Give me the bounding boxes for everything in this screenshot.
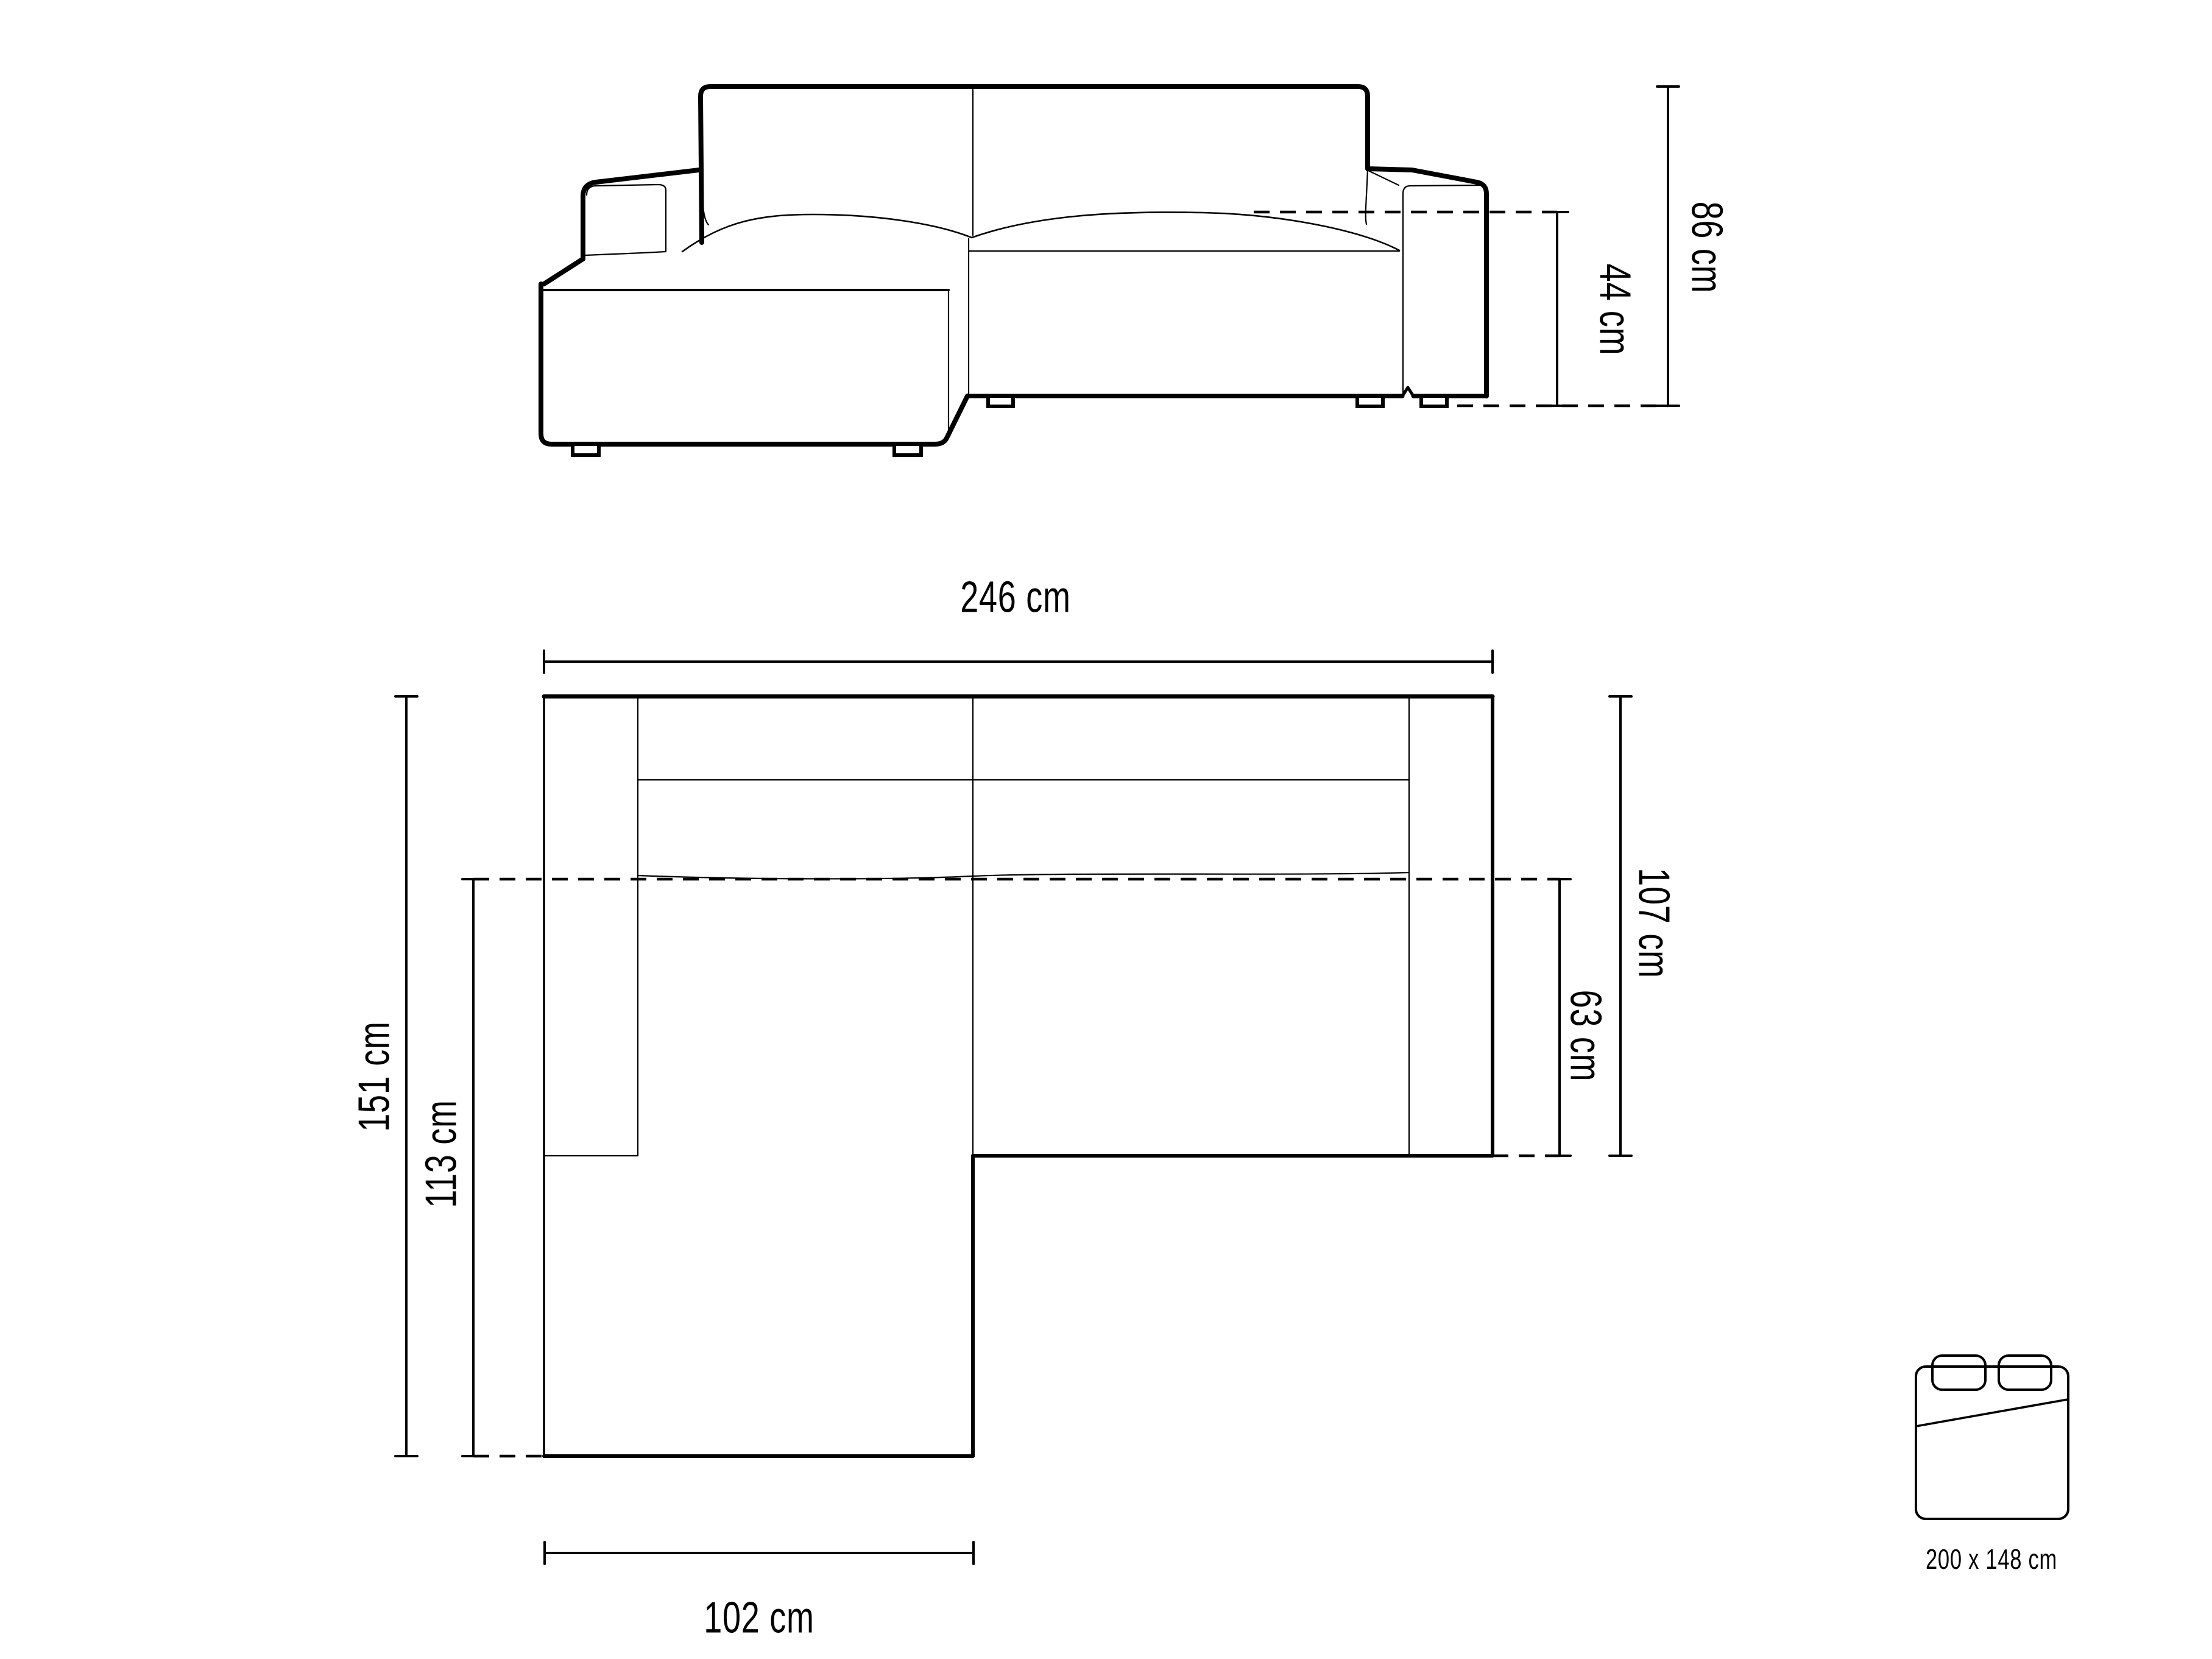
body-arm-notch — [1402, 387, 1413, 396]
total-height-label: 86 cm — [1683, 202, 1731, 294]
body-leg-right — [1357, 396, 1383, 406]
right-armrest-top-face-left-edge — [1368, 171, 1399, 185]
left-armrest-front-bottom-edge — [585, 252, 666, 255]
total-width-label: 246 cm — [960, 573, 1071, 621]
bed-duvet-fold-line — [1916, 1399, 2068, 1426]
chaise-leg-left — [573, 444, 599, 455]
chaise-width-label: 102 cm — [704, 1593, 814, 1642]
right-armrest-outer-edge — [1368, 169, 1486, 396]
seat-depth-label: 63 cm — [1561, 990, 1610, 1082]
bed-top-view-icon — [1916, 1356, 2068, 1519]
left-armrest-top-face — [587, 185, 666, 252]
armrest-leg-right — [1421, 396, 1447, 406]
sofa-dimensions-diagram: 86 cm 44 cm 246 cm 151 cm — [0, 0, 2212, 1659]
chaise-depth-label: 113 cm — [417, 1100, 465, 1208]
front-elevation-view: 86 cm 44 cm — [541, 87, 1731, 455]
seat-cushions-curve — [682, 212, 1399, 252]
bed-pillow-left — [1932, 1356, 1985, 1390]
right-armrest-top-face — [1403, 185, 1482, 194]
backrest-outline — [701, 87, 1368, 242]
height-dimensions: 86 cm 44 cm — [1254, 87, 1731, 406]
sleeping-area: 200 x 148 cm — [1916, 1356, 2068, 1575]
sleeping-area-size-label: 200 x 148 cm — [1926, 1543, 2057, 1575]
backrest-right-lower-edge — [1366, 169, 1368, 224]
body-leg-middle — [988, 396, 1013, 406]
plan-dimensions: 246 cm 151 cm 113 cm 107 cm 63 cm 102 cm — [350, 573, 1678, 1642]
side-depth-label: 107 cm — [1630, 868, 1678, 978]
diagram-canvas: 86 cm 44 cm 246 cm 151 cm — [0, 0, 2212, 1659]
top-plan-view: 246 cm 151 cm 113 cm 107 cm 63 cm 102 cm — [350, 573, 1678, 1642]
left-armrest-outer-edge — [544, 170, 699, 284]
total-depth-label: 151 cm — [350, 1021, 398, 1132]
chaise-block-outline — [541, 284, 967, 444]
seat-height-label: 44 cm — [1591, 264, 1639, 356]
chaise-leg-right — [894, 444, 921, 455]
bed-pillow-right — [1999, 1356, 2051, 1390]
